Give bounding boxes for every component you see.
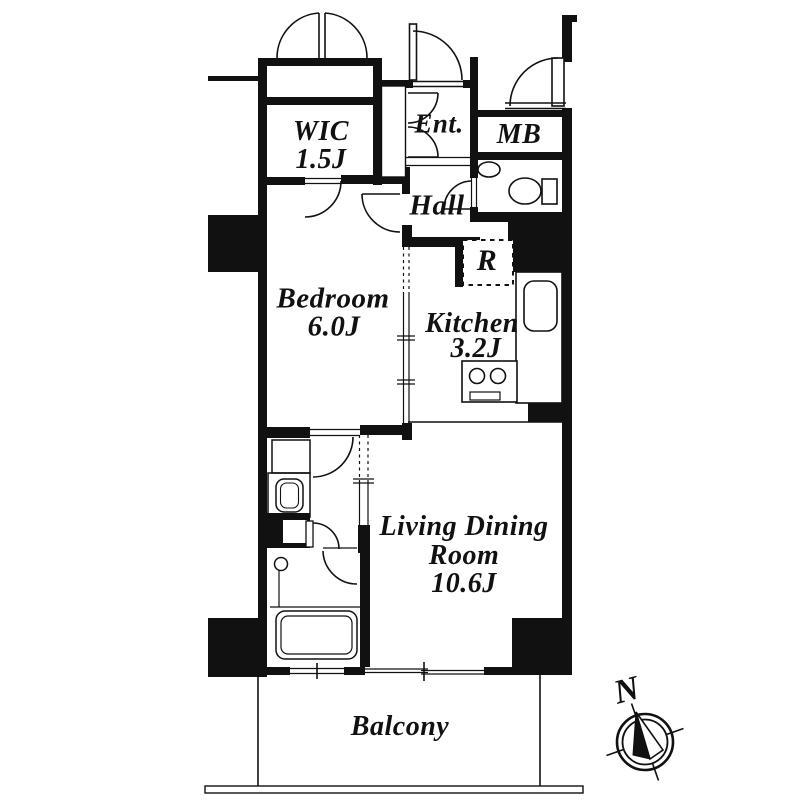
bathroom-door-icon xyxy=(306,521,357,584)
bedroom-size-label: 6.0J xyxy=(308,313,361,342)
closet-double-door-icon xyxy=(277,13,367,58)
refrigerator-label: R xyxy=(477,246,498,276)
wic-label: WIC xyxy=(293,118,349,146)
meter-box-label: MB xyxy=(497,121,542,149)
living-dining-label-1: Living Dining xyxy=(379,513,548,541)
sliding-partition xyxy=(397,247,415,423)
pillar xyxy=(512,618,570,673)
shower-faucet-icon xyxy=(275,558,288,571)
kitchen-sink-icon xyxy=(524,281,557,331)
bathroom-window-icon xyxy=(290,663,344,679)
wic-door-icon xyxy=(305,179,341,218)
living-dining-size-label: 10.6J xyxy=(431,570,497,598)
bedroom-label: Bedroom xyxy=(276,285,389,314)
washroom-fixtures xyxy=(268,440,310,517)
washbasin-icon xyxy=(268,473,310,517)
living-dining-label-2: Room xyxy=(429,542,499,570)
washroom-partition xyxy=(353,435,374,525)
pillar xyxy=(208,215,265,272)
compass-icon xyxy=(607,704,684,781)
washroom-door-icon xyxy=(310,430,360,478)
wic-size-label: 1.5J xyxy=(296,146,347,174)
pipe-space xyxy=(283,520,307,543)
meter-box-door-icon xyxy=(505,58,566,109)
kitchen-size-label: 3.2J xyxy=(451,335,502,363)
bathtub-icon xyxy=(276,611,357,659)
living-sliding-window-icon xyxy=(365,662,484,681)
washing-machine-pan-icon xyxy=(272,440,310,473)
entrance-label: Ent. xyxy=(414,111,463,138)
floor-plan-drawing xyxy=(0,0,800,800)
windows xyxy=(290,662,484,681)
stove-icon xyxy=(462,361,517,402)
bedroom-door-icon xyxy=(362,194,400,232)
floor-plan: WIC 1.5J Ent. MB Hall Bedroom 6.0J Kitch… xyxy=(0,0,800,800)
entrance-door-icon xyxy=(410,24,464,87)
bathroom-fixtures xyxy=(270,558,360,660)
toilet-icon xyxy=(478,162,557,204)
balcony-label: Balcony xyxy=(351,713,449,741)
pillar xyxy=(208,618,262,677)
hall-label: Hall xyxy=(409,192,464,221)
